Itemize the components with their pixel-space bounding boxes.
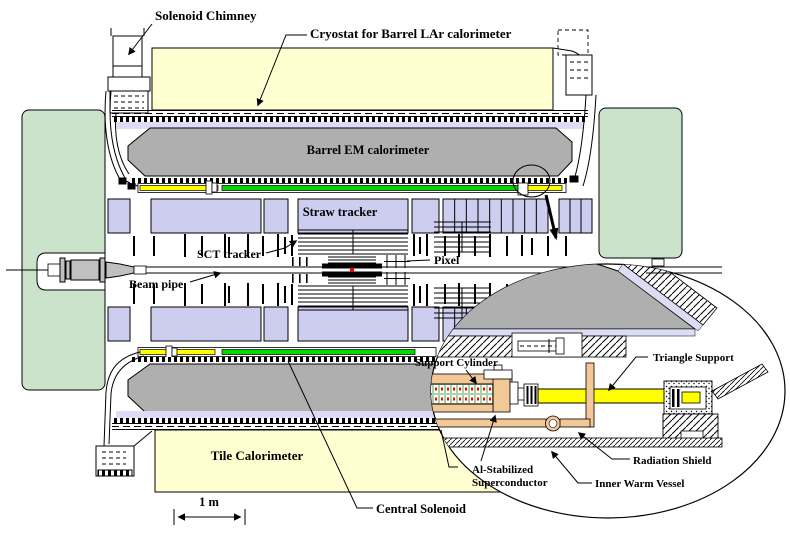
triangle-support-bar <box>538 389 668 403</box>
central-solenoid-bottom <box>138 346 436 358</box>
inset-bolt-detail <box>512 333 582 357</box>
label-straw-tracker: Straw tracker <box>303 205 378 219</box>
scale-bar: 1 m <box>174 495 245 525</box>
label-al-stabilized-line2: Superconductor <box>472 477 548 489</box>
interaction-point <box>350 268 354 272</box>
label-sct-tracker: SCT tracker <box>197 247 262 261</box>
endcap-calorimeter-right <box>599 108 682 258</box>
tile-calorimeter-top <box>152 48 553 110</box>
detector-cross-section-figure: 1 m Solenoid Chimney Cryostat for Barrel… <box>0 0 790 537</box>
label-tile-calorimeter: Tile Calorimeter <box>211 448 304 463</box>
scale-label: 1 m <box>199 495 219 509</box>
label-triangle-support: Triangle Support <box>653 352 734 364</box>
diagram-svg: 1 m Solenoid Chimney Cryostat for Barrel… <box>0 0 790 537</box>
endcap-calorimeter-left <box>22 110 105 390</box>
label-support-cylinder: Support Cylinder <box>415 357 498 369</box>
label-cryostat: Cryostat for Barrel LAr calorimeter <box>310 26 512 41</box>
sct-barrel-layers <box>298 222 491 318</box>
cryostat-inner-wall-top <box>130 178 570 183</box>
label-pixel: Pixel <box>434 253 460 267</box>
cryostat-wall-top <box>112 111 588 130</box>
label-inner-warm-vessel: Inner Warm Vessel <box>595 478 684 490</box>
label-beam-pipe: Beam pipe <box>129 277 184 291</box>
label-solenoid-chimney: Solenoid Chimney <box>155 8 257 23</box>
label-radiation-shield: Radiation Shield <box>633 455 712 467</box>
label-central-solenoid: Central Solenoid <box>376 502 466 516</box>
inset-inner-warm-vessel <box>428 438 722 447</box>
label-barrel-em-calorimeter: Barrel EM calorimeter <box>307 143 430 157</box>
central-solenoid-top <box>138 181 566 195</box>
triangle-support-post <box>586 363 594 427</box>
pixel-detector <box>322 255 410 285</box>
label-al-stabilized-line1: Al-Stabilized <box>472 464 533 476</box>
